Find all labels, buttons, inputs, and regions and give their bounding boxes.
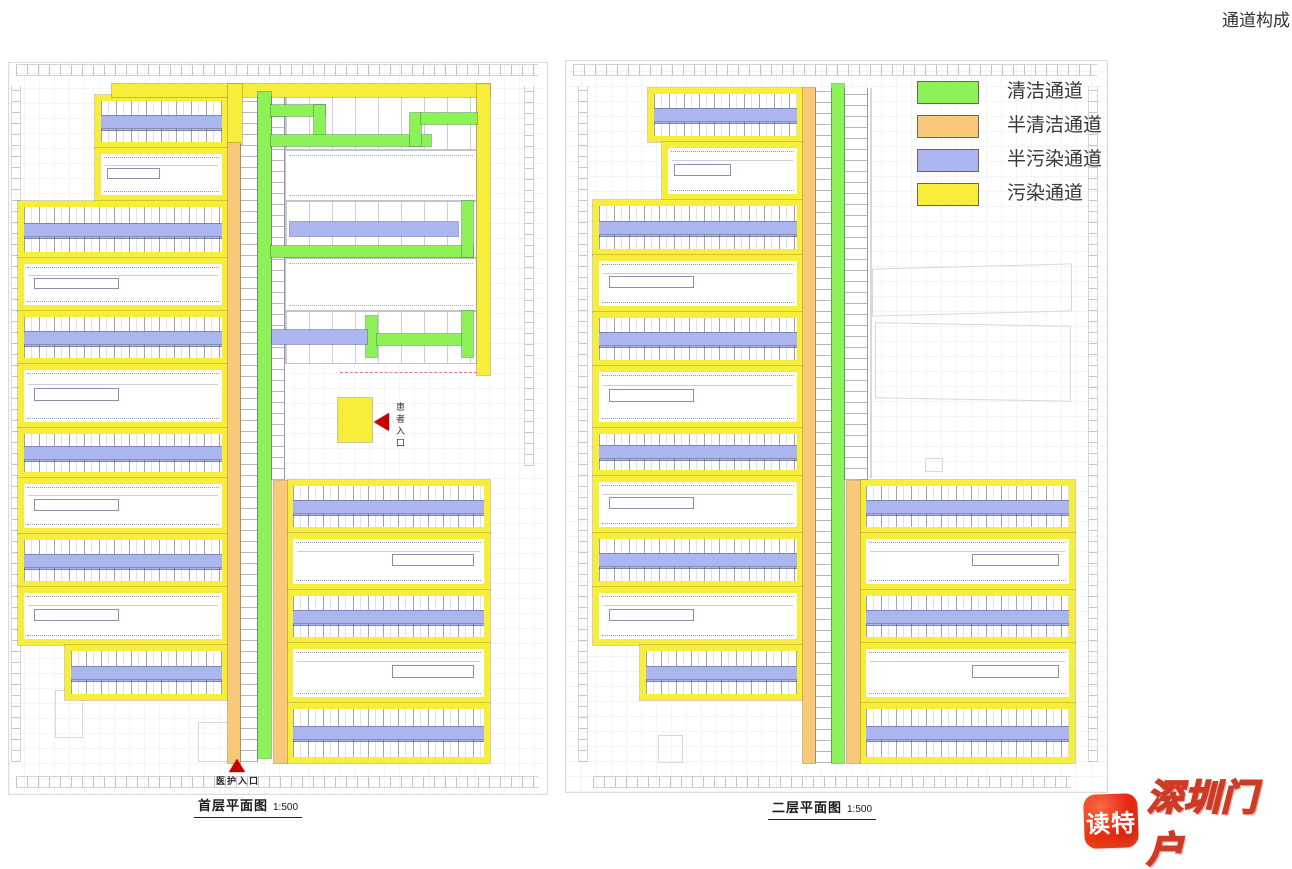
- detail-rect: [609, 389, 694, 402]
- detail-rect: [972, 554, 1059, 566]
- ward-rooms: [24, 540, 222, 555]
- ward-rooms: [24, 459, 222, 472]
- ward-block: [65, 645, 228, 700]
- ward-rooms: [71, 679, 222, 695]
- ward-block: [640, 645, 803, 700]
- ward-rooms: [101, 128, 222, 143]
- detail-rect: [392, 554, 474, 566]
- clean-corridor: [462, 201, 473, 257]
- red-dashed-line: [340, 372, 477, 373]
- legend-label-clean: 清洁通道: [1007, 81, 1083, 103]
- detail-line: [297, 661, 480, 662]
- service-block: [18, 478, 228, 534]
- ward-rooms: [866, 513, 1069, 528]
- legend-swatch-semi-polluted: [917, 149, 979, 172]
- detail-line: [603, 385, 793, 386]
- ward-rooms: [293, 596, 484, 611]
- clean-corridor: [366, 316, 377, 357]
- ward-rooms: [599, 234, 797, 250]
- page: 通道构成 清洁通道 半清洁通道 半污染通道 污染通道 患者入口 医护入口 首层平…: [0, 0, 1292, 869]
- clean-corridor: [271, 246, 473, 257]
- semi-polluted-corridor: [272, 330, 367, 344]
- detail-rect: [392, 665, 474, 678]
- ward-rooms: [293, 739, 484, 757]
- service-block: [662, 142, 803, 200]
- staff-entrance-arrow-icon: [229, 759, 245, 772]
- ward-block: [593, 200, 803, 255]
- legend-swatch-semi-clean: [917, 115, 979, 138]
- service-block: [593, 476, 803, 533]
- detail-line: [28, 495, 218, 496]
- clean-corridor: [258, 92, 271, 758]
- clean-corridor: [832, 84, 844, 763]
- faint-outline: [872, 263, 1072, 316]
- clean-corridor: [271, 135, 431, 146]
- dimension-ruler: [16, 64, 538, 76]
- ward-rooms: [866, 623, 1069, 638]
- ward-rooms: [599, 539, 797, 554]
- ward-rooms: [293, 709, 484, 727]
- room-column: [240, 96, 258, 762]
- page-title: 通道构成: [1198, 6, 1290, 31]
- ward-rooms: [24, 567, 222, 582]
- detail-rect: [972, 665, 1059, 678]
- dute-app-icon: 读特: [1083, 793, 1139, 849]
- patient-entrance-arrow-icon: [374, 413, 389, 431]
- ward-block: [287, 703, 490, 763]
- ward-block: [95, 95, 228, 148]
- semi-clean-corridor: [847, 481, 860, 763]
- clean-corridor: [377, 334, 463, 345]
- portal-wordmark: 深圳门户: [1147, 769, 1292, 869]
- patient-entrance-label: 患者入口: [394, 402, 407, 450]
- watermark-logo: 读特 深圳门户: [1084, 792, 1292, 850]
- room-column: [815, 88, 832, 763]
- legend-swatch-polluted: [917, 183, 979, 206]
- floor2-caption-scale: 1:500: [847, 804, 872, 815]
- dimension-ruler: [16, 776, 538, 788]
- dimension-ruler: [593, 776, 1071, 788]
- ward-rooms: [866, 709, 1069, 727]
- ward-block: [18, 428, 228, 478]
- ward-rooms: [293, 513, 484, 528]
- ward-rooms: [866, 739, 1069, 757]
- ward-rooms: [599, 566, 797, 581]
- ward-block: [593, 428, 803, 476]
- polluted-corridor: [477, 84, 490, 375]
- ward-rooms: [24, 236, 222, 253]
- floor1-caption: 首层平面图1:500: [178, 795, 318, 818]
- service-block: [95, 148, 228, 201]
- ward-block: [593, 533, 803, 587]
- legend-row-semi-polluted: 半污染通道: [917, 149, 1157, 171]
- legend-row-semi-clean: 半清洁通道: [917, 115, 1157, 137]
- ward-rooms: [599, 458, 797, 470]
- detail-rect: [34, 609, 119, 621]
- detail-line: [28, 275, 218, 276]
- staff-entrance-label: 医护入口: [206, 774, 270, 787]
- ward-rooms: [866, 486, 1069, 501]
- ward-block: [18, 201, 228, 258]
- clean-corridor: [314, 105, 325, 139]
- legend-label-polluted: 污染通道: [1007, 183, 1083, 205]
- semi-polluted-corridor: [290, 222, 458, 236]
- service-block: [18, 258, 228, 311]
- floor1-caption-scale: 1:500: [273, 802, 298, 813]
- ward-rooms: [71, 651, 222, 667]
- ward-rooms: [646, 679, 797, 695]
- polluted-corridor: [338, 398, 372, 442]
- semi-clean-corridor: [228, 143, 240, 763]
- ward-block: [18, 534, 228, 587]
- legend-row-clean: 清洁通道: [917, 81, 1157, 103]
- detail-rect: [34, 278, 119, 289]
- ward-rooms: [599, 345, 797, 360]
- clean-corridor: [410, 113, 421, 146]
- ward-block: [287, 480, 490, 533]
- detail-line: [28, 384, 218, 385]
- service-band: [285, 150, 477, 201]
- detail-rect: [34, 388, 119, 401]
- detail-line: [672, 160, 793, 161]
- detail-line: [28, 605, 218, 606]
- detail-line: [297, 551, 480, 552]
- dimension-ruler: [524, 86, 534, 466]
- service-block: [593, 255, 803, 312]
- service-block: [287, 643, 490, 703]
- detail-line: [870, 661, 1065, 662]
- legend-label-semi-polluted: 半污染通道: [1007, 149, 1102, 171]
- ward-rooms: [24, 207, 222, 224]
- floor2-caption-name: 二层平面图: [772, 800, 842, 815]
- ward-rooms: [866, 596, 1069, 611]
- detail-rect: [674, 164, 730, 176]
- clean-corridor: [462, 311, 473, 357]
- semi-clean-corridor: [803, 88, 815, 763]
- faint-outline: [658, 735, 683, 763]
- faint-outline: [870, 88, 872, 478]
- ward-block: [593, 312, 803, 366]
- legend: 清洁通道 半清洁通道 半污染通道 污染通道: [917, 81, 1157, 211]
- detail-rect: [107, 168, 160, 179]
- ward-block: [860, 590, 1075, 643]
- ward-rooms: [293, 486, 484, 501]
- ward-rooms: [654, 121, 797, 136]
- room-column: [844, 88, 868, 480]
- ward-block: [860, 703, 1075, 763]
- detail-rect: [609, 609, 694, 621]
- ward-rooms: [293, 623, 484, 638]
- dimension-ruler: [573, 64, 1097, 76]
- ward-rooms: [654, 94, 797, 109]
- detail-rect: [34, 499, 119, 511]
- faint-outline: [875, 322, 1071, 401]
- detail-line: [603, 494, 793, 495]
- floor1-caption-name: 首层平面图: [198, 798, 268, 813]
- semi-clean-corridor: [274, 481, 287, 763]
- service-block: [860, 533, 1075, 590]
- service-block: [593, 587, 803, 645]
- faint-outline: [198, 722, 230, 762]
- legend-swatch-clean: [917, 81, 979, 104]
- legend-label-semi-clean: 半清洁通道: [1007, 115, 1102, 137]
- service-block: [860, 643, 1075, 703]
- dute-app-name: 读特: [1085, 803, 1136, 840]
- ward-block: [860, 480, 1075, 533]
- service-block: [18, 364, 228, 428]
- detail-line: [603, 605, 793, 606]
- detail-line: [870, 551, 1065, 552]
- ward-rooms: [24, 317, 222, 332]
- room-column: [271, 96, 285, 480]
- service-band: [285, 258, 477, 311]
- service-block: [18, 587, 228, 645]
- polluted-corridor: [228, 84, 242, 144]
- polluted-corridor: [112, 84, 490, 97]
- detail-rect: [609, 276, 694, 288]
- dimension-ruler: [578, 86, 588, 762]
- ward-rooms: [646, 651, 797, 667]
- legend-row-polluted: 污染通道: [917, 183, 1157, 205]
- clean-corridor: [421, 113, 477, 124]
- service-block: [593, 366, 803, 428]
- ward-block: [287, 590, 490, 643]
- faint-outline: [925, 458, 943, 472]
- service-block: [287, 533, 490, 590]
- ward-rooms: [101, 101, 222, 116]
- ward-rooms: [599, 206, 797, 222]
- detail-line: [105, 165, 218, 166]
- ward-rooms: [24, 344, 222, 359]
- floor2-caption: 二层平面图1:500: [752, 797, 892, 820]
- ward-rooms: [599, 318, 797, 333]
- ward-block: [18, 311, 228, 364]
- detail-rect: [609, 497, 694, 509]
- ward-block: [648, 88, 803, 142]
- detail-line: [603, 273, 793, 274]
